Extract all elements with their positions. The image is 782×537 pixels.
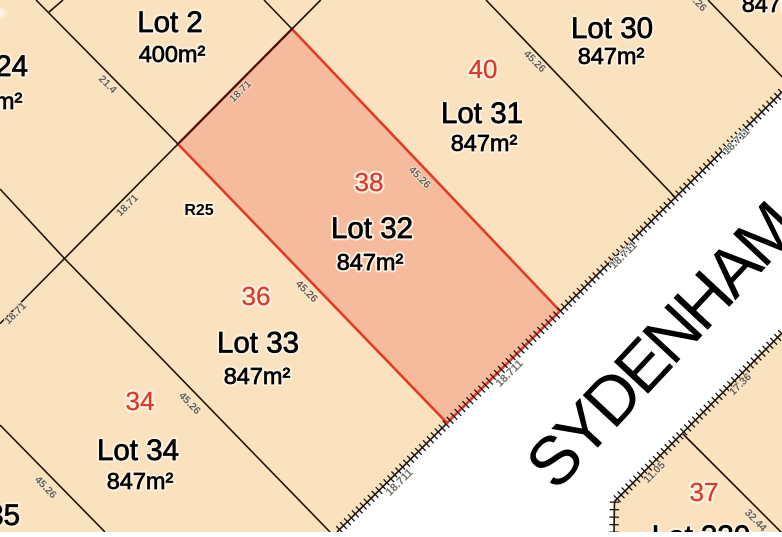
svg-text:34: 34 bbox=[126, 386, 155, 416]
svg-text:Lot 34: Lot 34 bbox=[97, 434, 179, 467]
svg-text:847m²: 847m² bbox=[742, 0, 782, 17]
svg-text:Lot 24: Lot 24 bbox=[0, 50, 28, 83]
svg-text:38: 38 bbox=[355, 167, 384, 197]
svg-text:847m²: 847m² bbox=[451, 130, 518, 156]
svg-text:37: 37 bbox=[690, 477, 719, 507]
svg-text:Lot 2: Lot 2 bbox=[137, 6, 203, 39]
svg-text:847m²: 847m² bbox=[0, 88, 22, 114]
svg-text:36: 36 bbox=[242, 281, 271, 311]
svg-text:847m²: 847m² bbox=[337, 249, 404, 275]
svg-text:847m²: 847m² bbox=[107, 468, 174, 494]
svg-text:R25: R25 bbox=[184, 202, 213, 219]
svg-text:847m²: 847m² bbox=[224, 363, 291, 389]
svg-text:Lot 33: Lot 33 bbox=[217, 327, 299, 360]
svg-text:Lot 31: Lot 31 bbox=[441, 97, 523, 130]
svg-text:Lot 330: Lot 330 bbox=[652, 520, 750, 532]
svg-text:Lot 35: Lot 35 bbox=[0, 499, 20, 532]
svg-text:40: 40 bbox=[469, 54, 498, 84]
svg-text:847m²: 847m² bbox=[578, 43, 645, 69]
svg-text:Lot 30: Lot 30 bbox=[571, 12, 653, 45]
svg-text:Lot 32: Lot 32 bbox=[331, 212, 413, 245]
svg-text:400m²: 400m² bbox=[139, 41, 206, 67]
